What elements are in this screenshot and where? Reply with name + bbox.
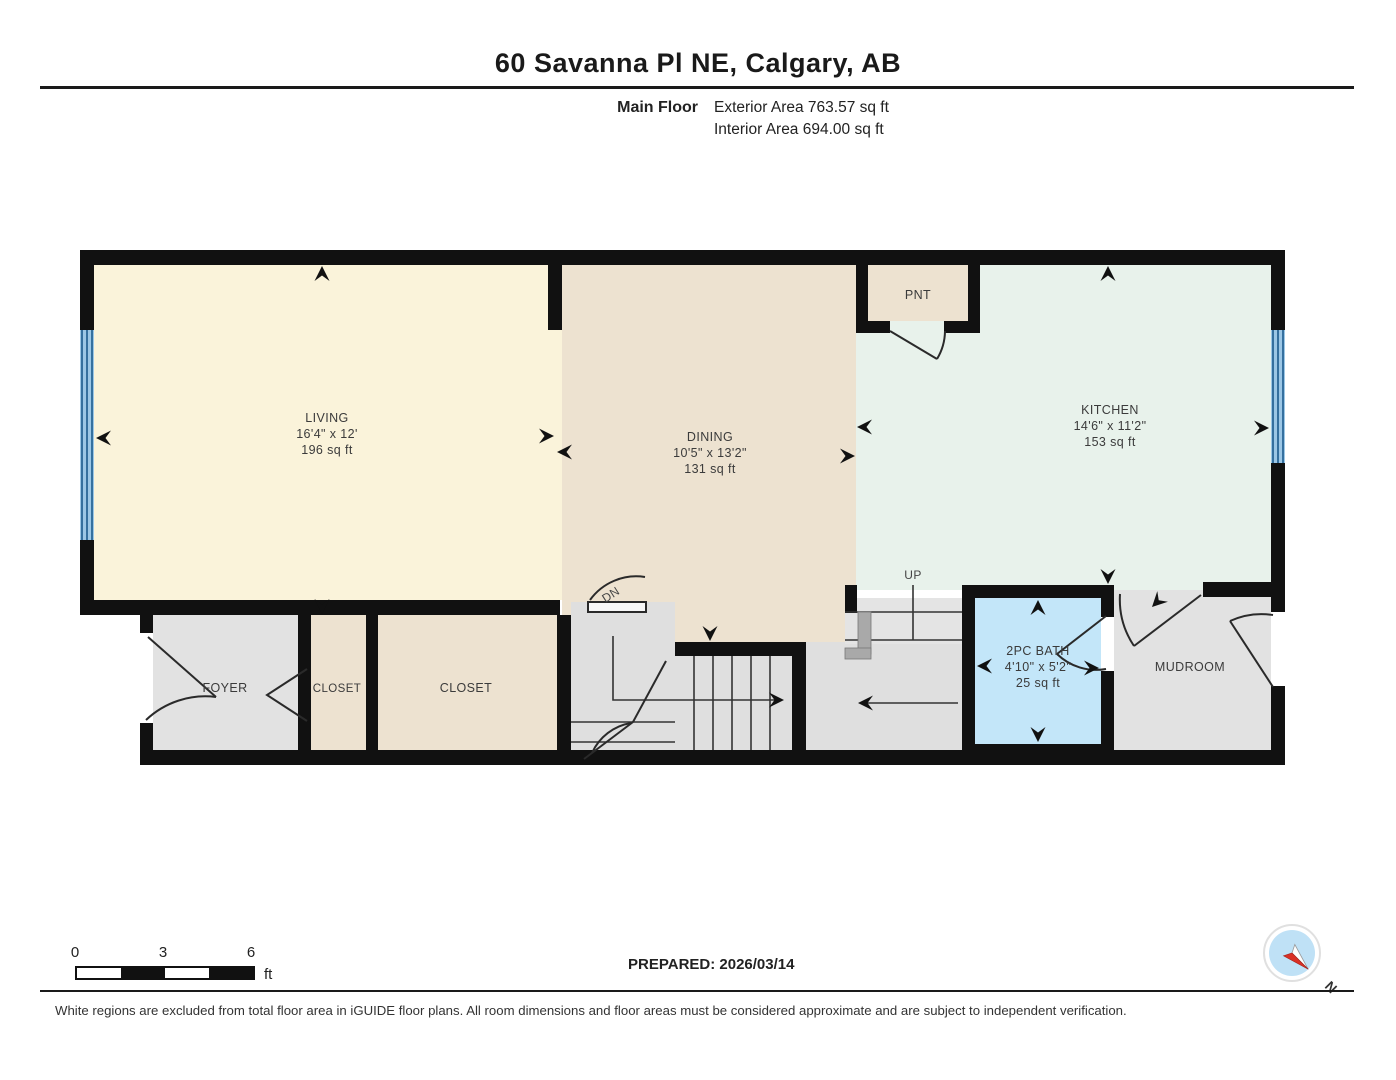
scale-bar [75, 966, 255, 980]
scale-segment [77, 968, 121, 978]
living-dims: 16'4" x 12' [296, 427, 358, 441]
scale-tick-6: 6 [244, 944, 258, 961]
dining-dims: 10'5" x 13'2" [673, 446, 747, 460]
window-left [80, 330, 94, 540]
foyer-label: FOYER [202, 681, 247, 695]
scale-tick-3: 3 [156, 944, 170, 961]
pantry-label: PNT [905, 288, 931, 302]
stairs-up-label: UP [904, 568, 921, 582]
kitchen-dims: 14'6" x 11'2" [1074, 419, 1147, 433]
dining-label: DINING [687, 430, 733, 444]
scale-unit: ft [264, 966, 272, 983]
stairs-up-area [806, 642, 962, 750]
floor-plan: LIVING 16'4" x 12' 196 sq ft DINING 10'5… [0, 0, 1396, 1080]
kitchen-label: KITCHEN [1081, 403, 1139, 417]
bath-dims: 4'10" x 5'2" [1005, 660, 1071, 674]
living-area: 196 sq ft [301, 443, 353, 457]
mudroom-label: MUDROOM [1155, 660, 1225, 674]
disclaimer-text: White regions are excluded from total fl… [55, 1003, 1127, 1018]
closet1-label: CLOSET [313, 683, 361, 695]
room-fills [94, 265, 1271, 762]
dn-door [588, 602, 646, 612]
floor-plan-page: 60 Savanna Pl NE, Calgary, AB Main Floor… [0, 0, 1396, 1080]
scale-tick-0: 0 [68, 944, 82, 961]
scale-segment [121, 968, 165, 978]
living-label: LIVING [305, 411, 348, 425]
bath-area: 25 sq ft [1016, 676, 1060, 690]
window-right [1271, 330, 1285, 463]
prepared-date: PREPARED: 2026/03/14 [628, 956, 794, 973]
kitchen-area: 153 sq ft [1084, 435, 1136, 449]
compass-north-label: N [1322, 978, 1340, 996]
stairs-dn-area [571, 602, 675, 750]
scale-segment [209, 968, 253, 978]
bath-label: 2PC BATH [1006, 644, 1069, 658]
scale-segment [165, 968, 209, 978]
dining-area: 131 sq ft [684, 462, 736, 476]
closet2-label: CLOSET [440, 681, 492, 695]
footer-divider [40, 990, 1354, 992]
